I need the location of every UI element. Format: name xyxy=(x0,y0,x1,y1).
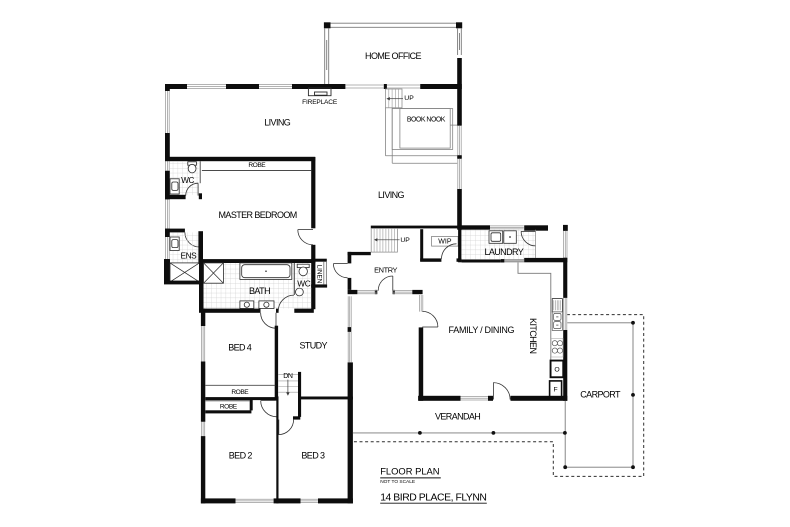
svg-text:ROBE: ROBE xyxy=(248,162,266,169)
svg-text:O: O xyxy=(554,367,559,374)
svg-text:UP: UP xyxy=(400,237,410,244)
svg-text:CARPORT: CARPORT xyxy=(580,390,621,400)
svg-text:LIVING: LIVING xyxy=(378,190,405,200)
svg-text:FAMILY / DINING: FAMILY / DINING xyxy=(449,325,515,335)
svg-text:FIREPLACE: FIREPLACE xyxy=(302,99,338,106)
svg-text:BED 3: BED 3 xyxy=(301,450,325,460)
svg-text:ROBE: ROBE xyxy=(220,403,238,410)
svg-text:WC: WC xyxy=(297,278,310,288)
svg-text:UP: UP xyxy=(404,95,414,102)
svg-text:KITCHEN: KITCHEN xyxy=(528,318,538,353)
svg-text:ROBE: ROBE xyxy=(231,389,249,396)
svg-text:BATH: BATH xyxy=(249,286,270,296)
svg-text:DN: DN xyxy=(283,373,293,380)
svg-text:MASTER BEDROOM: MASTER BEDROOM xyxy=(219,210,297,220)
svg-text:VERANDAH: VERANDAH xyxy=(435,412,480,422)
svg-text:BOOK NOOK: BOOK NOOK xyxy=(407,117,446,124)
svg-text:ENS: ENS xyxy=(180,250,197,260)
svg-text:STUDY: STUDY xyxy=(299,341,327,351)
svg-text:LINEN: LINEN xyxy=(315,265,322,284)
svg-text:ENTRY: ENTRY xyxy=(374,265,397,274)
svg-text:BED 4: BED 4 xyxy=(228,342,252,352)
svg-text:FLOOR PLAN: FLOOR PLAN xyxy=(380,466,439,477)
svg-text:WC: WC xyxy=(181,175,194,185)
svg-text:BED 2: BED 2 xyxy=(229,450,253,460)
svg-text:HOME OFFICE: HOME OFFICE xyxy=(365,51,421,61)
svg-text:WIP: WIP xyxy=(438,239,452,246)
svg-text:NOT TO SCALE: NOT TO SCALE xyxy=(380,479,415,485)
svg-text:LIVING: LIVING xyxy=(264,118,291,128)
svg-text:F: F xyxy=(554,387,558,394)
svg-text:14 BIRD PLACE, FLYNN: 14 BIRD PLACE, FLYNN xyxy=(380,492,486,503)
svg-text:LAUNDRY: LAUNDRY xyxy=(484,247,523,257)
